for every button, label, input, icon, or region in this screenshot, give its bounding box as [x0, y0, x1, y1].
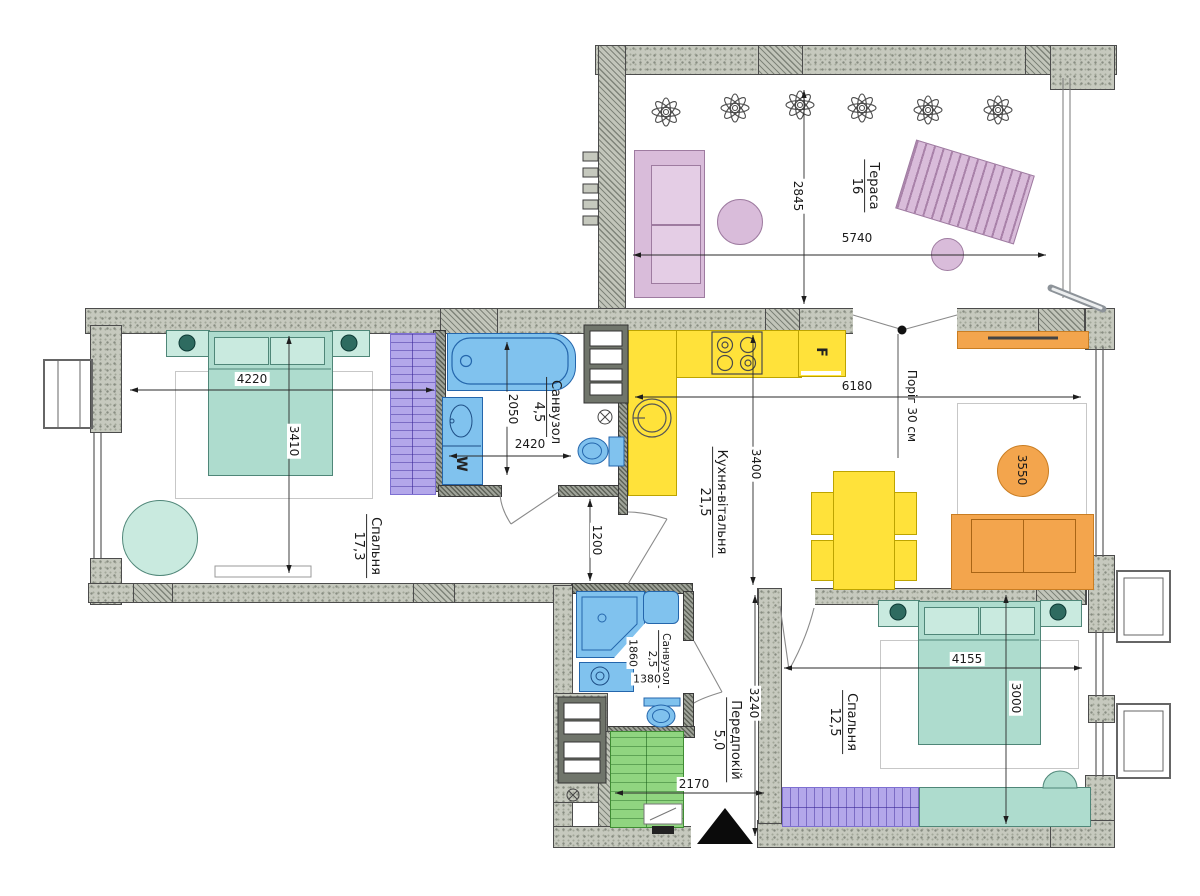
dining-chair: [894, 540, 917, 581]
entrance-opening: [691, 826, 756, 848]
wall: [618, 398, 628, 515]
bedroom2-pillow: [924, 607, 979, 635]
bedroom1-pillow: [214, 337, 269, 365]
dim-bedroom1-depth: 3410: [287, 424, 301, 459]
bedroom1-wardrobe: [390, 333, 436, 495]
wall: [133, 583, 173, 603]
dining-chair: [894, 492, 917, 535]
tv-sideboard: [957, 331, 1089, 349]
wall: [1085, 308, 1115, 350]
bedroom1-nightstand: [330, 330, 370, 357]
wall: [758, 45, 803, 75]
dim-terrace-depth: 2845: [791, 179, 805, 214]
room-area: 21,5: [697, 447, 713, 558]
bedroom2-pillow: [980, 607, 1035, 635]
bedroom2-nightstand: [1040, 600, 1082, 627]
dim-hallway-depth: 3240: [747, 686, 761, 721]
dim-bathroom1-depth: 2050: [506, 392, 520, 427]
wall: [683, 591, 694, 641]
terrace-door-opening: [853, 308, 957, 334]
living-sofa-cushion: [1023, 519, 1076, 573]
dining-table: [833, 471, 895, 590]
wall: [1088, 695, 1115, 723]
wall: [1025, 45, 1053, 75]
dim-bathroom2-width: 1380: [631, 673, 663, 686]
washer-label: W: [453, 456, 469, 471]
bedroom1-round-rug: [122, 500, 198, 576]
wall: [598, 45, 626, 310]
dim-kitchen-width: 6180: [840, 379, 875, 393]
bathroom1-vanity-washer: [442, 397, 483, 485]
terrace-lounge-chair: [895, 139, 1035, 244]
dim-passage-width: 1200: [590, 523, 604, 558]
water-heater: [643, 591, 679, 624]
room-name: Спальня: [843, 690, 860, 754]
dim-living-rug: 3550: [1015, 453, 1029, 488]
dim-terrace-width: 5740: [840, 231, 875, 245]
terrace-handrail: [1051, 288, 1103, 309]
hallway-wardrobe: [610, 731, 684, 828]
room-area: 16: [849, 159, 865, 212]
dim-bathroom2-depth: 1860: [627, 637, 640, 669]
plant-icons: [652, 91, 1012, 126]
room-label-hallway: Передпокій 5,0: [711, 697, 743, 782]
wall: [758, 588, 782, 824]
room-label-bedroom2: Спальня 12,5: [827, 690, 859, 754]
room-area: 12,5: [827, 690, 843, 754]
wall: [558, 485, 624, 497]
dining-chair: [811, 540, 834, 581]
room-name: Кухня-вітальня: [713, 447, 730, 558]
room-label-bedroom1: Спальня 17,3: [351, 514, 383, 578]
room-name: Передпокій: [727, 697, 744, 782]
dim-bedroom2-depth: 3000: [1009, 681, 1023, 716]
wall: [1050, 45, 1115, 90]
room-area: 17,3: [351, 514, 367, 578]
room-name: Санвузол: [547, 377, 564, 447]
dim-kitchen-depth: 3400: [749, 447, 763, 482]
terrace-pouf: [931, 238, 964, 271]
room-name: Спальня: [367, 514, 384, 578]
bedroom2-nightstand: [878, 600, 920, 627]
terrace-railing: [1063, 78, 1070, 298]
dining-chair: [811, 492, 834, 535]
terrace-round-table: [717, 199, 763, 245]
dim-hallway-width: 2170: [677, 777, 712, 791]
bedroom1-nightstand: [166, 330, 210, 357]
wall: [90, 325, 122, 433]
dim-bathroom1-width: 2420: [513, 437, 548, 451]
wall: [438, 485, 502, 497]
bedroom2-desk: [919, 787, 1091, 827]
dim-bedroom1-width: 4220: [235, 372, 270, 386]
kitchen-counter-side: [628, 330, 677, 496]
toilet-2: [644, 698, 680, 727]
console-table: [215, 566, 311, 577]
room-label-kitchen: Кухня-вітальня 21,5: [697, 447, 729, 558]
terrace-sofa-cushion: [651, 225, 701, 284]
threshold-note: Поріг 30 см: [905, 368, 919, 444]
ladder-icon: [583, 152, 598, 225]
floor-plan: Тераса 16 Спальня 17,3 Санвузол 4,5 Кухн…: [0, 0, 1200, 896]
dim-bedroom2-width: 4155: [950, 652, 985, 666]
bedroom2-door-opening: [777, 588, 815, 605]
living-sofa-cushion: [971, 519, 1024, 573]
terrace-sofa-cushion: [651, 165, 701, 225]
desk-chair: [1043, 771, 1077, 788]
wall: [440, 308, 498, 334]
room-label-terrace: Тераса 16: [849, 159, 881, 212]
fridge-slit: [801, 371, 841, 375]
wall: [553, 826, 693, 848]
room-name: Тераса: [865, 159, 882, 212]
bedroom1-pillow: [270, 337, 325, 365]
bedroom2-wardrobe: [782, 787, 921, 827]
wall: [413, 583, 455, 603]
fridge-label: F: [813, 347, 829, 357]
room-area: 5,0: [711, 697, 727, 782]
